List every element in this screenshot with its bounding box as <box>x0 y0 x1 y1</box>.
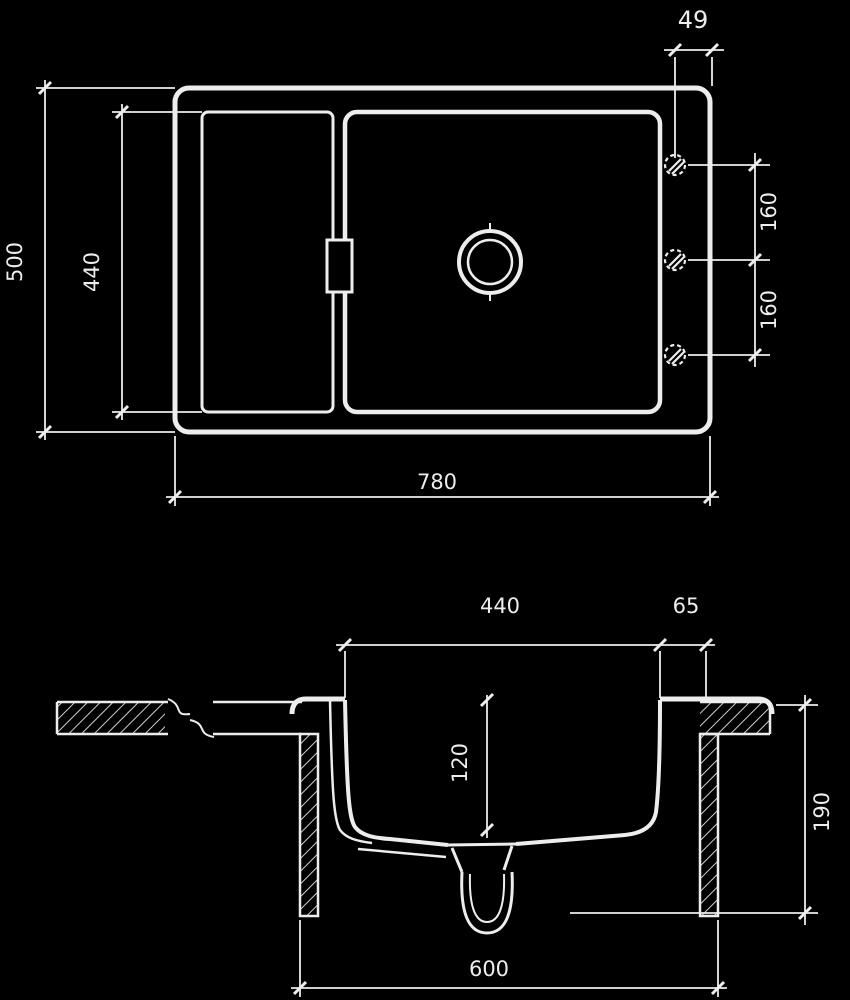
sink-outer-outline <box>175 88 710 432</box>
faucet-holes <box>665 155 685 365</box>
cabinet-panel-left <box>300 734 318 916</box>
dim-bowl-height-label: 190 <box>810 792 834 832</box>
drain <box>459 223 521 301</box>
dim-overall-depth-label: 500 <box>3 242 27 282</box>
dim-bowl-width <box>336 639 715 700</box>
dim-front-depth <box>481 694 493 838</box>
dim-overall-width-label: 780 <box>417 470 457 494</box>
dim-bowl-width-label: 440 <box>480 594 520 618</box>
technical-drawing: 49 500 440 160 16 <box>0 0 850 1000</box>
dim-bowl-depth-label: 440 <box>80 252 104 292</box>
dim-hole-spacing-upper-label: 160 <box>757 192 781 232</box>
faucet-hole <box>665 250 685 270</box>
drain-circle-inner <box>468 240 512 284</box>
dim-bowl-depth <box>112 104 202 420</box>
drain-assembly <box>448 844 516 933</box>
section-view: 440 65 <box>57 594 834 997</box>
dim-cabinet-width-label: 600 <box>469 957 509 981</box>
dim-overall-depth <box>36 80 175 440</box>
dim-hole-spacing <box>688 153 770 367</box>
countertop-right <box>700 702 770 734</box>
dim-right-ledge-label: 65 <box>673 594 700 618</box>
dim-bowl-height <box>570 695 818 925</box>
dim-front-depth-label: 120 <box>448 743 472 783</box>
countertop-left <box>57 699 302 737</box>
bowl-outline <box>345 112 660 412</box>
drainboard-outline <box>202 112 333 412</box>
bowl-section-walls <box>330 700 660 857</box>
faucet-hole <box>665 345 685 365</box>
cabinet-panel-right <box>700 734 718 916</box>
drawing-canvas: 49 500 440 160 16 <box>0 0 850 1000</box>
top-view: 49 500 440 160 16 <box>3 6 781 506</box>
dim-hole-spacing-lower-label: 160 <box>757 290 781 330</box>
tap-hole-cutout <box>327 240 352 292</box>
dim-hole-offset-label: 49 <box>678 6 709 34</box>
dim-hole-offset <box>664 44 724 158</box>
